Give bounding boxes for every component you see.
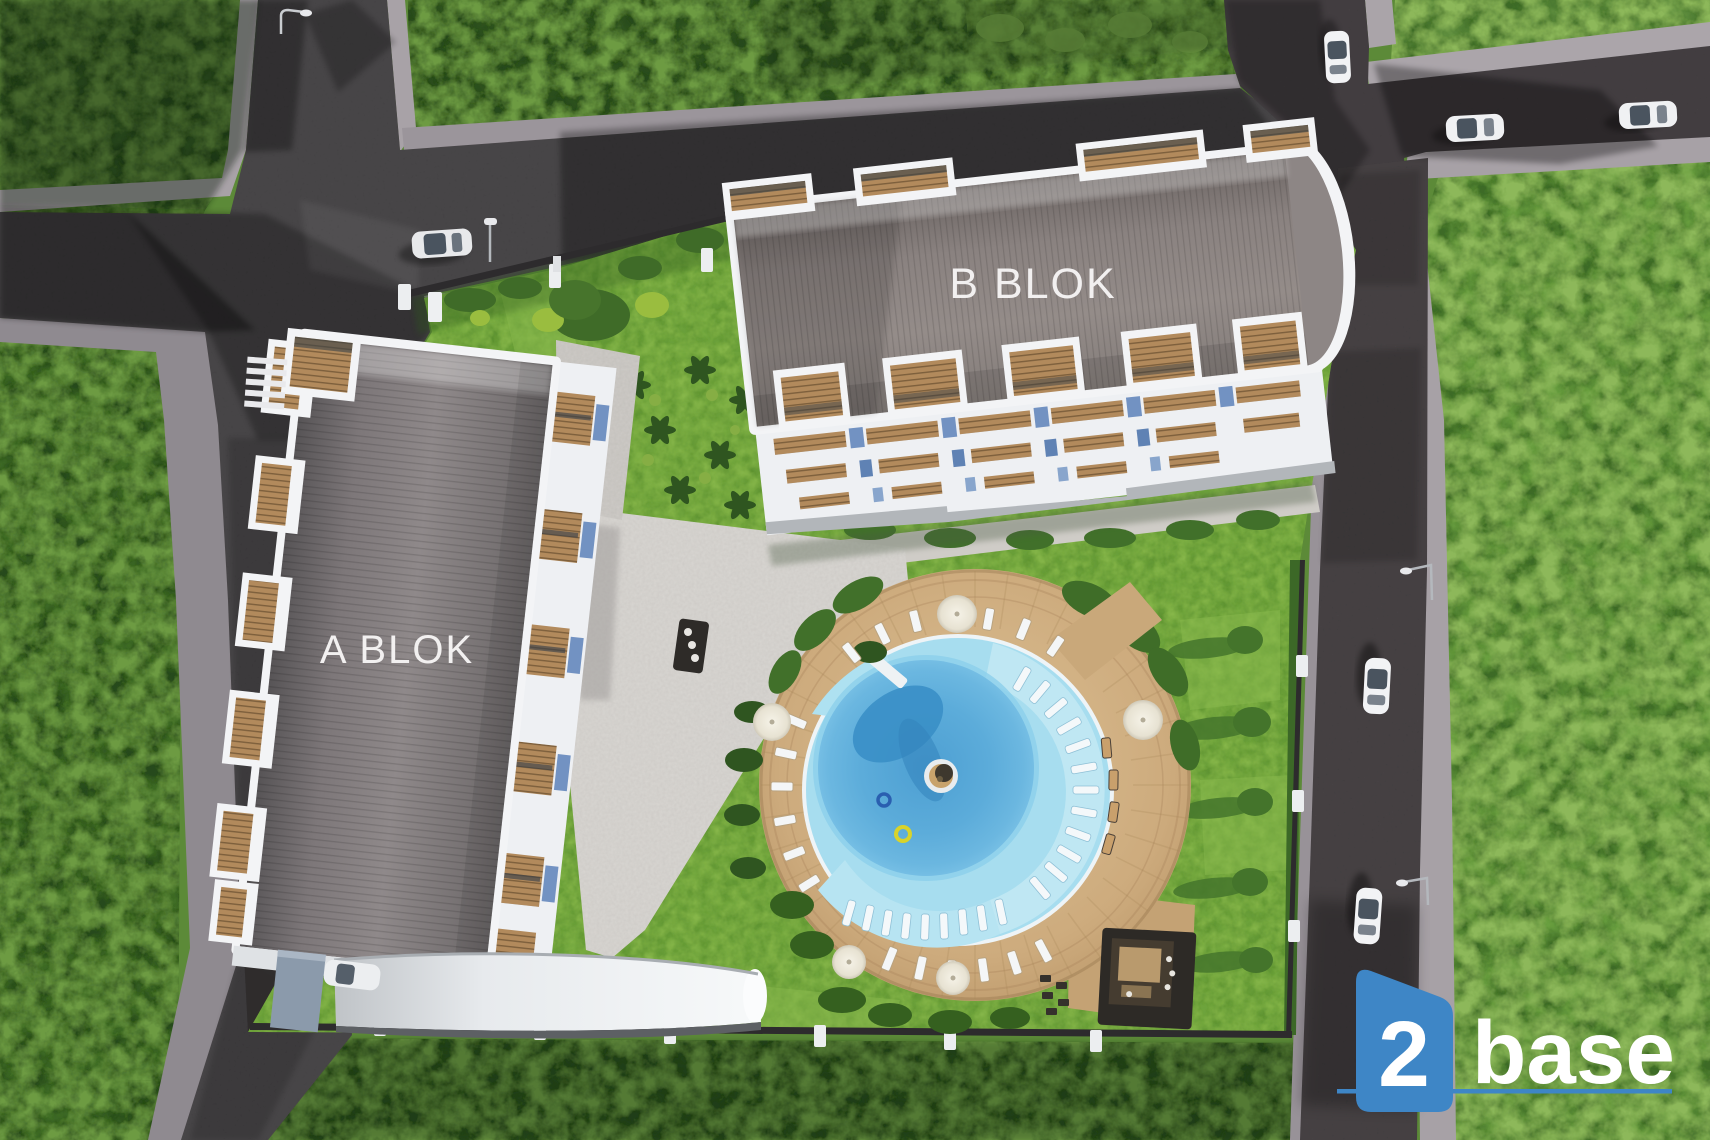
svg-text:base: base [1472,1002,1675,1102]
svg-text:2: 2 [1378,1002,1430,1106]
svg-text:B BLOK: B BLOK [949,260,1116,308]
svg-text:A BLOK: A BLOK [320,628,474,672]
